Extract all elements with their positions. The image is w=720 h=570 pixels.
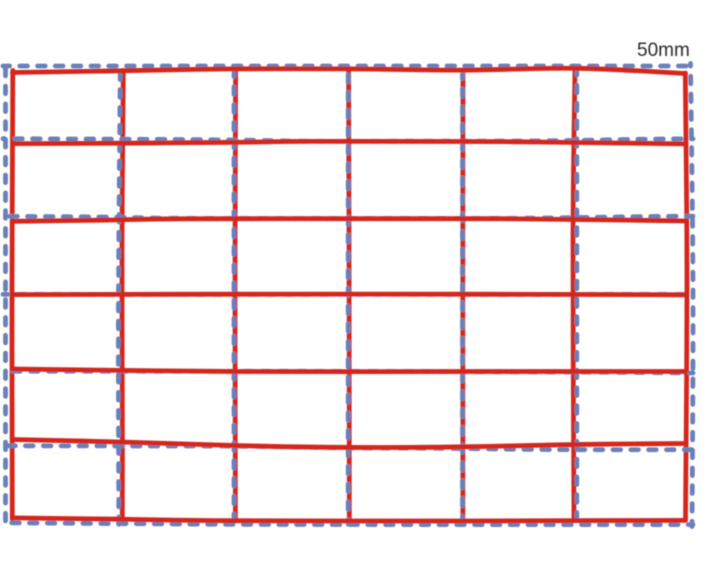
svg-text:50mm: 50mm (637, 40, 690, 61)
